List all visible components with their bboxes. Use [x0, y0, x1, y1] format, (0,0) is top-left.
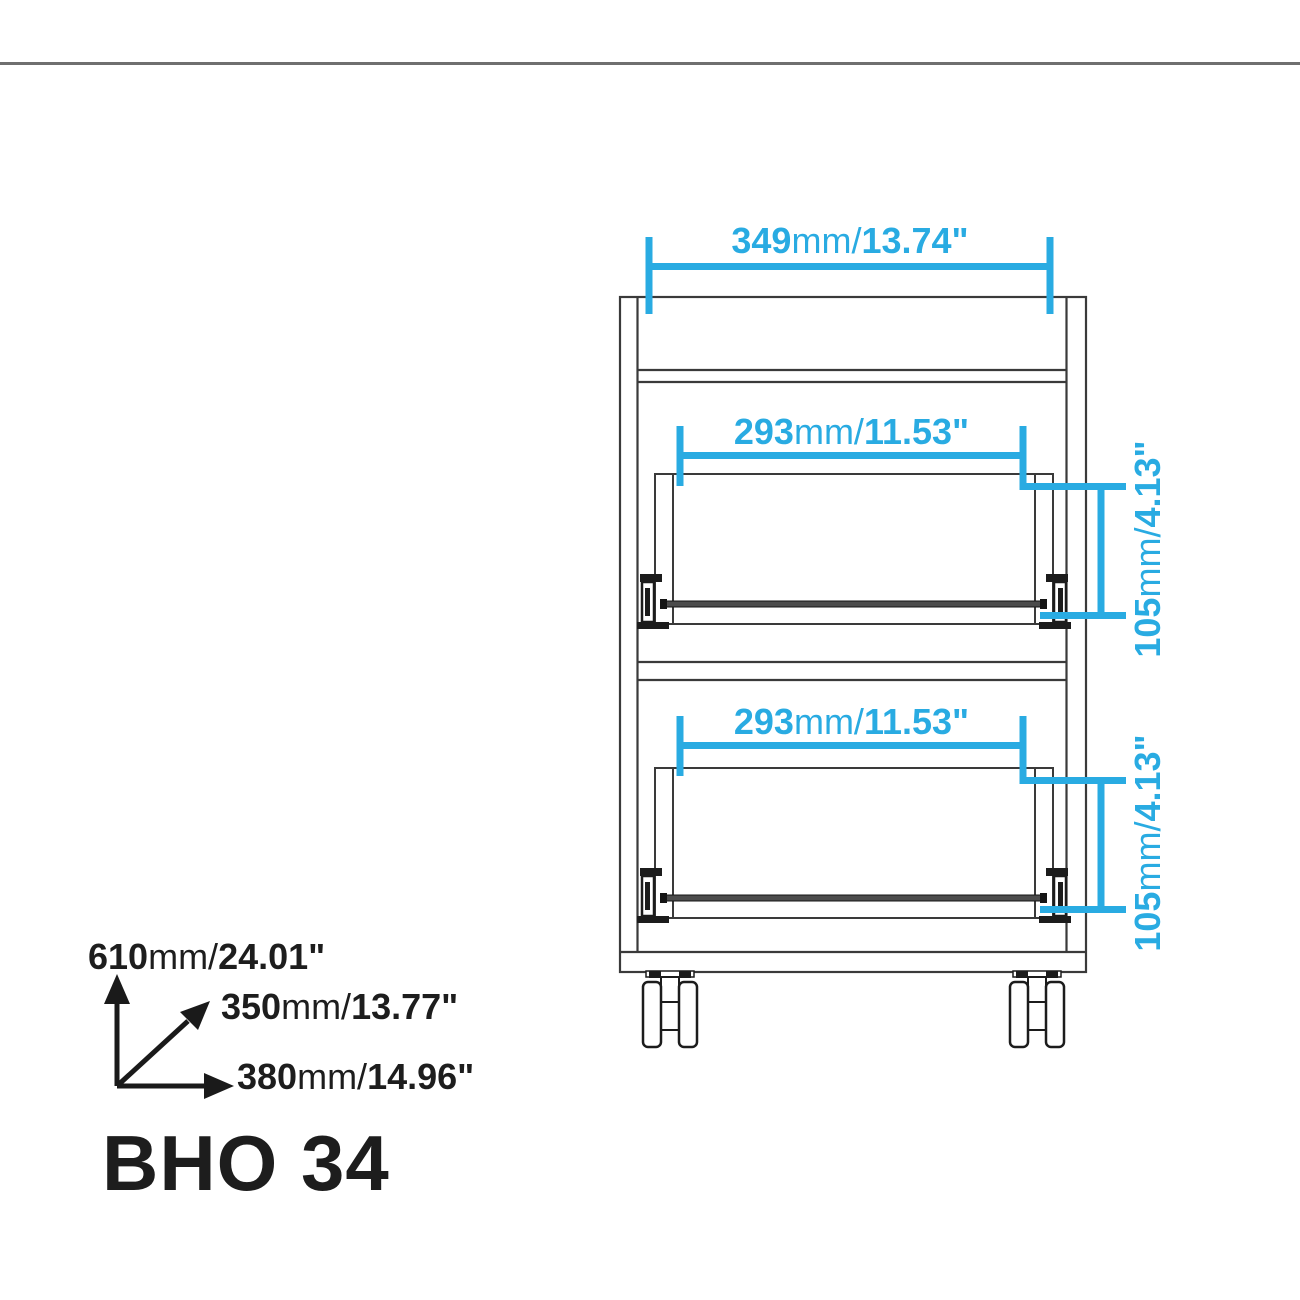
dim-unit: mm/ [148, 936, 218, 977]
dim-unit: mm/ [281, 986, 351, 1027]
caster-right-tab2 [1046, 971, 1058, 978]
caster-right-wheel-inner [1046, 982, 1064, 1047]
caster-right [1010, 971, 1064, 1047]
dim-value-mm: 349 [731, 220, 791, 261]
dim-value-mm: 350 [221, 986, 281, 1027]
cabinet-technical-drawing [0, 0, 1300, 1300]
dim-label-top-width: 349mm/13.74" [646, 221, 1054, 261]
caster-right-tab1 [1016, 971, 1028, 978]
dim-unit: mm/ [791, 220, 861, 261]
drawer1-rail [666, 601, 1041, 607]
dim-top-line [646, 263, 1054, 270]
dim-unit: mm/ [794, 701, 864, 742]
drawer2-rail [666, 895, 1041, 901]
axis-depth-shaft [117, 1021, 188, 1086]
spec-sheet: 349mm/13.74" 293mm/11.53" 105mm/4.13" 29… [0, 0, 1300, 1300]
cabinet-outline [620, 297, 1086, 972]
dim-value-mm: 293 [734, 411, 794, 452]
caster-left-fork [661, 977, 679, 1030]
dim-label-overall-height: 610mm/24.01" [88, 937, 325, 977]
dim-value-in: 4.13" [1127, 734, 1168, 821]
dim-value-mm: 293 [734, 701, 794, 742]
caster-left-wheel-inner [679, 982, 697, 1047]
axis-height-arrowhead [104, 974, 130, 1004]
dim-value-in: 14.96" [367, 1056, 474, 1097]
dim-label-drawer1-width: 293mm/11.53" [680, 412, 1023, 452]
drawer2-rail-cap-left [660, 893, 667, 903]
dim-value-in: 4.13" [1127, 440, 1168, 527]
caster-left-tab1 [649, 971, 661, 978]
dim-unit: mm/ [1127, 822, 1168, 892]
dim-value-in: 11.53" [864, 701, 969, 742]
dim-value-mm: 105 [1127, 598, 1168, 658]
dim-d1h-arm-top [1020, 483, 1127, 490]
dim-d2h-vertical [1098, 777, 1105, 913]
drawer1-rail-cap-right [1040, 599, 1047, 609]
caster-right-fork [1028, 977, 1046, 1030]
caster-left-tab2 [679, 971, 691, 978]
cabinet-carcass [620, 297, 1086, 972]
dim-value-in: 13.74" [861, 220, 968, 261]
dim-value-in: 24.01" [218, 936, 325, 977]
dim-value-in: 11.53" [864, 411, 969, 452]
dim-label-overall-depth: 350mm/13.77" [221, 987, 458, 1027]
dim-unit: mm/ [794, 411, 864, 452]
product-title: BHO 34 [102, 1118, 390, 1209]
dim-unit: mm/ [297, 1056, 367, 1097]
caster-left-wheel-outer [643, 982, 661, 1047]
dim-value-in: 13.77" [351, 986, 458, 1027]
drawer2-rail-cap-right [1040, 893, 1047, 903]
overall-dimension-axes [104, 974, 234, 1099]
dim-d1h-vertical [1098, 483, 1105, 619]
dim-label-drawer1-height: 105mm/4.13" [1126, 389, 1170, 709]
caster-right-wheel-outer [1010, 982, 1028, 1047]
dim-label-drawer2-width: 293mm/11.53" [680, 702, 1023, 742]
dim-unit: mm/ [1127, 528, 1168, 598]
drawer1-rail-cap-left [660, 599, 667, 609]
dim-label-overall-width: 380mm/14.96" [237, 1057, 474, 1097]
dim-value-mm: 105 [1127, 892, 1168, 952]
dim-value-mm: 610 [88, 936, 148, 977]
drawer-2 [637, 768, 1071, 923]
dim-d2h-arm-top [1020, 777, 1127, 784]
dim-d1-line [677, 452, 1027, 459]
axis-width-arrowhead [204, 1073, 234, 1099]
dim-d2h-arm-bottom [1040, 906, 1126, 913]
drawer-1 [637, 474, 1071, 629]
dim-label-drawer2-height: 105mm/4.13" [1126, 683, 1170, 1003]
caster-left [643, 971, 697, 1047]
dim-d1h-arm-bottom [1040, 612, 1126, 619]
page-divider-line [0, 62, 1300, 65]
dim-d2-line [677, 742, 1027, 749]
dim-value-mm: 380 [237, 1056, 297, 1097]
